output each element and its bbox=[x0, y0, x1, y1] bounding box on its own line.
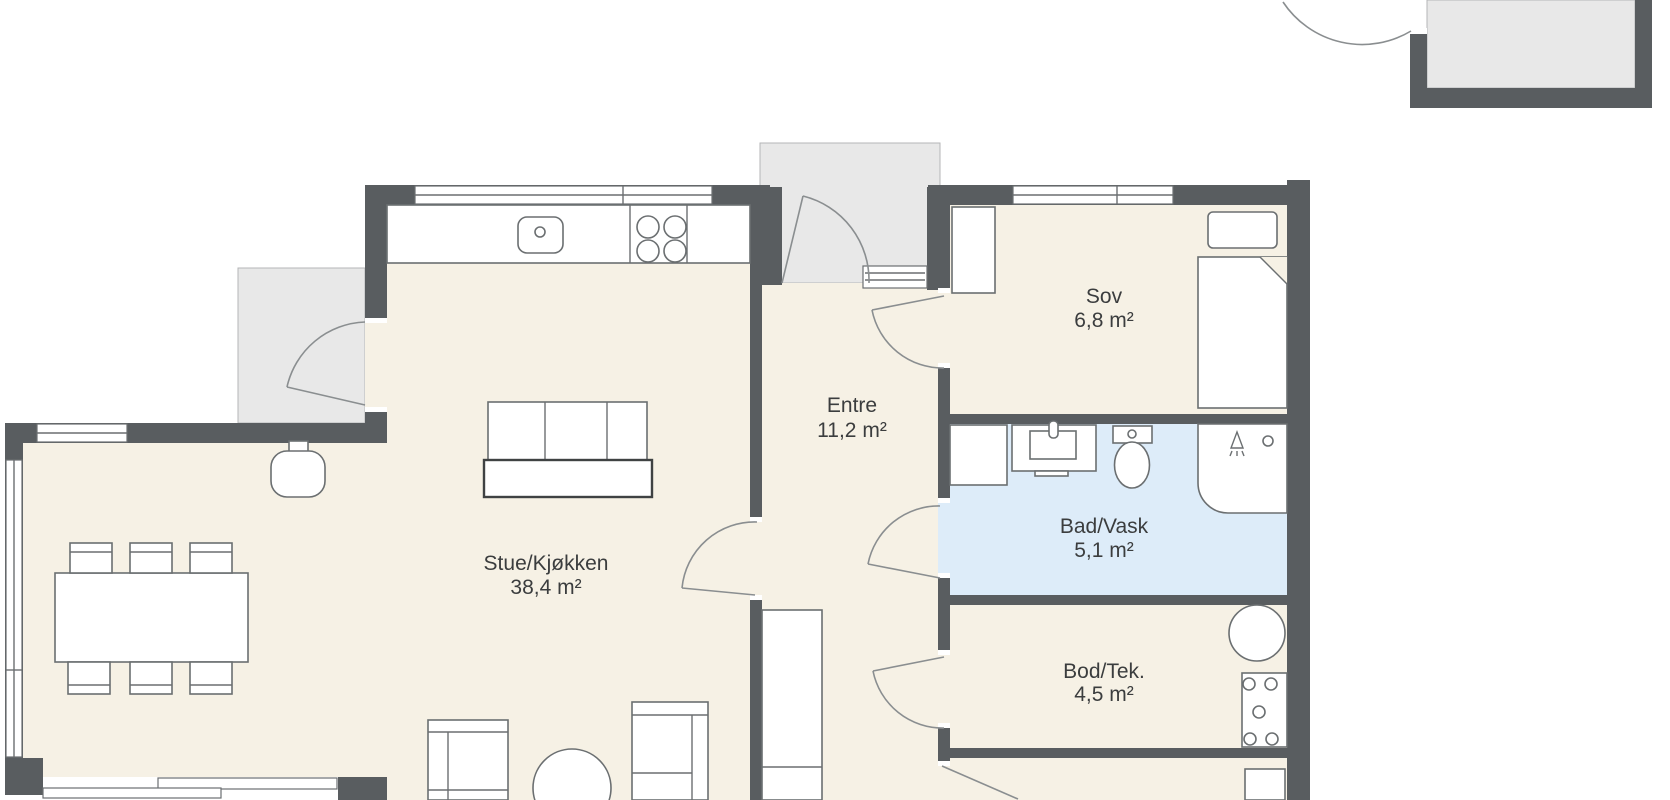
wc-fixture bbox=[1245, 769, 1285, 800]
bathroom-vanity bbox=[1012, 421, 1096, 476]
entry-threshold bbox=[863, 266, 927, 288]
bed bbox=[1198, 212, 1287, 408]
label-bod-tek-name: Bod/Tek. bbox=[1063, 660, 1145, 683]
wall-entre-bad bbox=[938, 368, 950, 503]
floor-terrace-door-gap bbox=[365, 323, 387, 407]
wall-entre-bod bbox=[938, 578, 950, 655]
armchair-left bbox=[428, 720, 508, 800]
label-stue-kjokken-name: Stue/Kjøkken bbox=[484, 552, 609, 575]
armchair-right bbox=[632, 702, 708, 800]
wall-living-entre-lower bbox=[750, 595, 762, 800]
dining-chairs-top bbox=[70, 543, 232, 573]
label-sov-name: Sov bbox=[1086, 285, 1123, 308]
floor-gap-living-entre bbox=[750, 522, 762, 595]
wall-bottom-left-corner bbox=[5, 758, 43, 795]
wall-sov-bottom bbox=[940, 414, 1287, 424]
entre-wardrobe bbox=[762, 610, 822, 800]
shower bbox=[1198, 424, 1287, 513]
window-kitchen bbox=[415, 186, 712, 204]
washing-machine bbox=[950, 425, 1007, 485]
wall-shed-right bbox=[1635, 0, 1652, 108]
floorplan-canvas: Stue/Kjøkken 38,4 m² Entre 11,2 m² Sov 6… bbox=[0, 0, 1670, 800]
label-entre-area: 11,2 m² bbox=[817, 419, 887, 442]
sink-drain-icon bbox=[535, 227, 545, 237]
label-bod-tek-area: 4,5 m² bbox=[1074, 683, 1134, 706]
dining-table bbox=[55, 573, 248, 662]
sov-wardrobe bbox=[952, 207, 995, 293]
wall-bottom-right-corner bbox=[338, 777, 387, 800]
wall-living-entre-upper bbox=[750, 285, 762, 522]
label-sov-area: 6,8 m² bbox=[1074, 309, 1134, 332]
wall-entre-wc bbox=[938, 728, 950, 766]
wall-bod-bottom bbox=[938, 748, 1310, 758]
shed-floor-area bbox=[1427, 0, 1635, 88]
wall-upper-left bbox=[365, 185, 387, 323]
window-left-wall bbox=[6, 460, 22, 757]
shower-drain-icon bbox=[1263, 436, 1273, 446]
kitchen-counter bbox=[387, 205, 750, 263]
window-dining-top bbox=[37, 424, 127, 442]
floor-gap-wc-door bbox=[938, 766, 950, 800]
wall-entre-sov bbox=[938, 205, 950, 293]
toilet-flush-icon bbox=[1128, 430, 1136, 438]
wall-right-exterior bbox=[1287, 180, 1310, 800]
floor-gap-bod-door bbox=[938, 655, 950, 728]
wall-shed-left bbox=[1410, 33, 1427, 88]
toilet-bowl bbox=[1115, 442, 1150, 488]
window-sov bbox=[1013, 186, 1173, 204]
wall-porch-left bbox=[750, 187, 782, 285]
sliding-door-bottom bbox=[43, 778, 337, 798]
label-bad-vask-name: Bad/Vask bbox=[1060, 515, 1149, 538]
tech-panel bbox=[1242, 673, 1287, 747]
terrace-area bbox=[238, 268, 365, 423]
floor-gap-sov-door bbox=[938, 293, 950, 368]
sofa bbox=[484, 402, 652, 497]
floor-bottom-room bbox=[950, 758, 1287, 800]
floorplan-drawing: Stue/Kjøkken 38,4 m² Entre 11,2 m² Sov 6… bbox=[0, 0, 1670, 800]
bed-pillow bbox=[1208, 212, 1277, 248]
water-heater bbox=[1229, 605, 1285, 661]
label-bad-vask-area: 5,1 m² bbox=[1074, 539, 1134, 562]
label-stue-kjokken-area: 38,4 m² bbox=[510, 576, 581, 599]
toilet bbox=[1113, 426, 1152, 488]
vanity-faucet bbox=[1049, 421, 1058, 438]
shed-door bbox=[1283, 2, 1411, 45]
floor-gap-bad-door bbox=[938, 503, 950, 578]
label-entre-name: Entre bbox=[827, 394, 877, 417]
wall-shed-bottom bbox=[1410, 88, 1652, 108]
wall-bad-bottom bbox=[943, 595, 1287, 605]
dining-chairs-bottom bbox=[68, 662, 232, 694]
